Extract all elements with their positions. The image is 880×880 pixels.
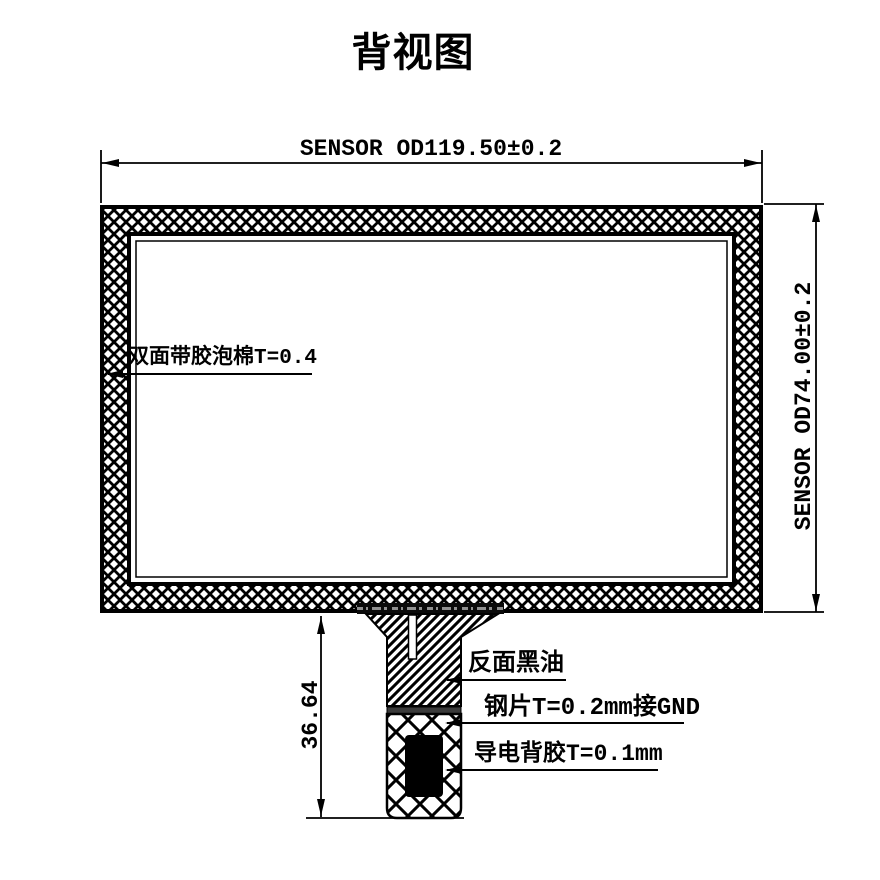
fpc-tail xyxy=(357,603,504,818)
page-title: 背视图 xyxy=(293,30,533,76)
callout-back-black-ink: 反面黑油 xyxy=(468,651,564,679)
tail-slot xyxy=(409,615,417,659)
arrow-down-icon xyxy=(317,799,325,816)
sensor-panel xyxy=(102,207,761,611)
callout-steel-sheet: 钢片T=0.2mm接GND xyxy=(484,695,700,723)
callout-conductive-adhesive: 导电背胶T=0.1mm xyxy=(474,741,663,767)
dimension-top-width: SENSOR OD119.50±0.2 xyxy=(181,136,681,162)
arrow-up-icon xyxy=(812,205,820,222)
panel-viewing-area xyxy=(136,241,727,577)
arrow-down-icon xyxy=(812,594,820,611)
drawing-canvas xyxy=(0,0,880,880)
arrow-right-icon xyxy=(744,159,761,167)
arrow-up-icon xyxy=(317,617,325,634)
dimension-tail-height: 36.64 xyxy=(298,655,324,775)
callout-foam: 双面带胶泡棉T=0.4 xyxy=(128,347,317,371)
dimension-right-height: SENSOR OD74.00±0.2 xyxy=(791,256,817,556)
arrow-left-icon xyxy=(102,159,119,167)
conductive-adhesive-pad xyxy=(405,735,443,797)
drawing-page: 背视图 SENSOR OD119.50±0.2 SENSOR OD74.00±0… xyxy=(0,0,880,880)
